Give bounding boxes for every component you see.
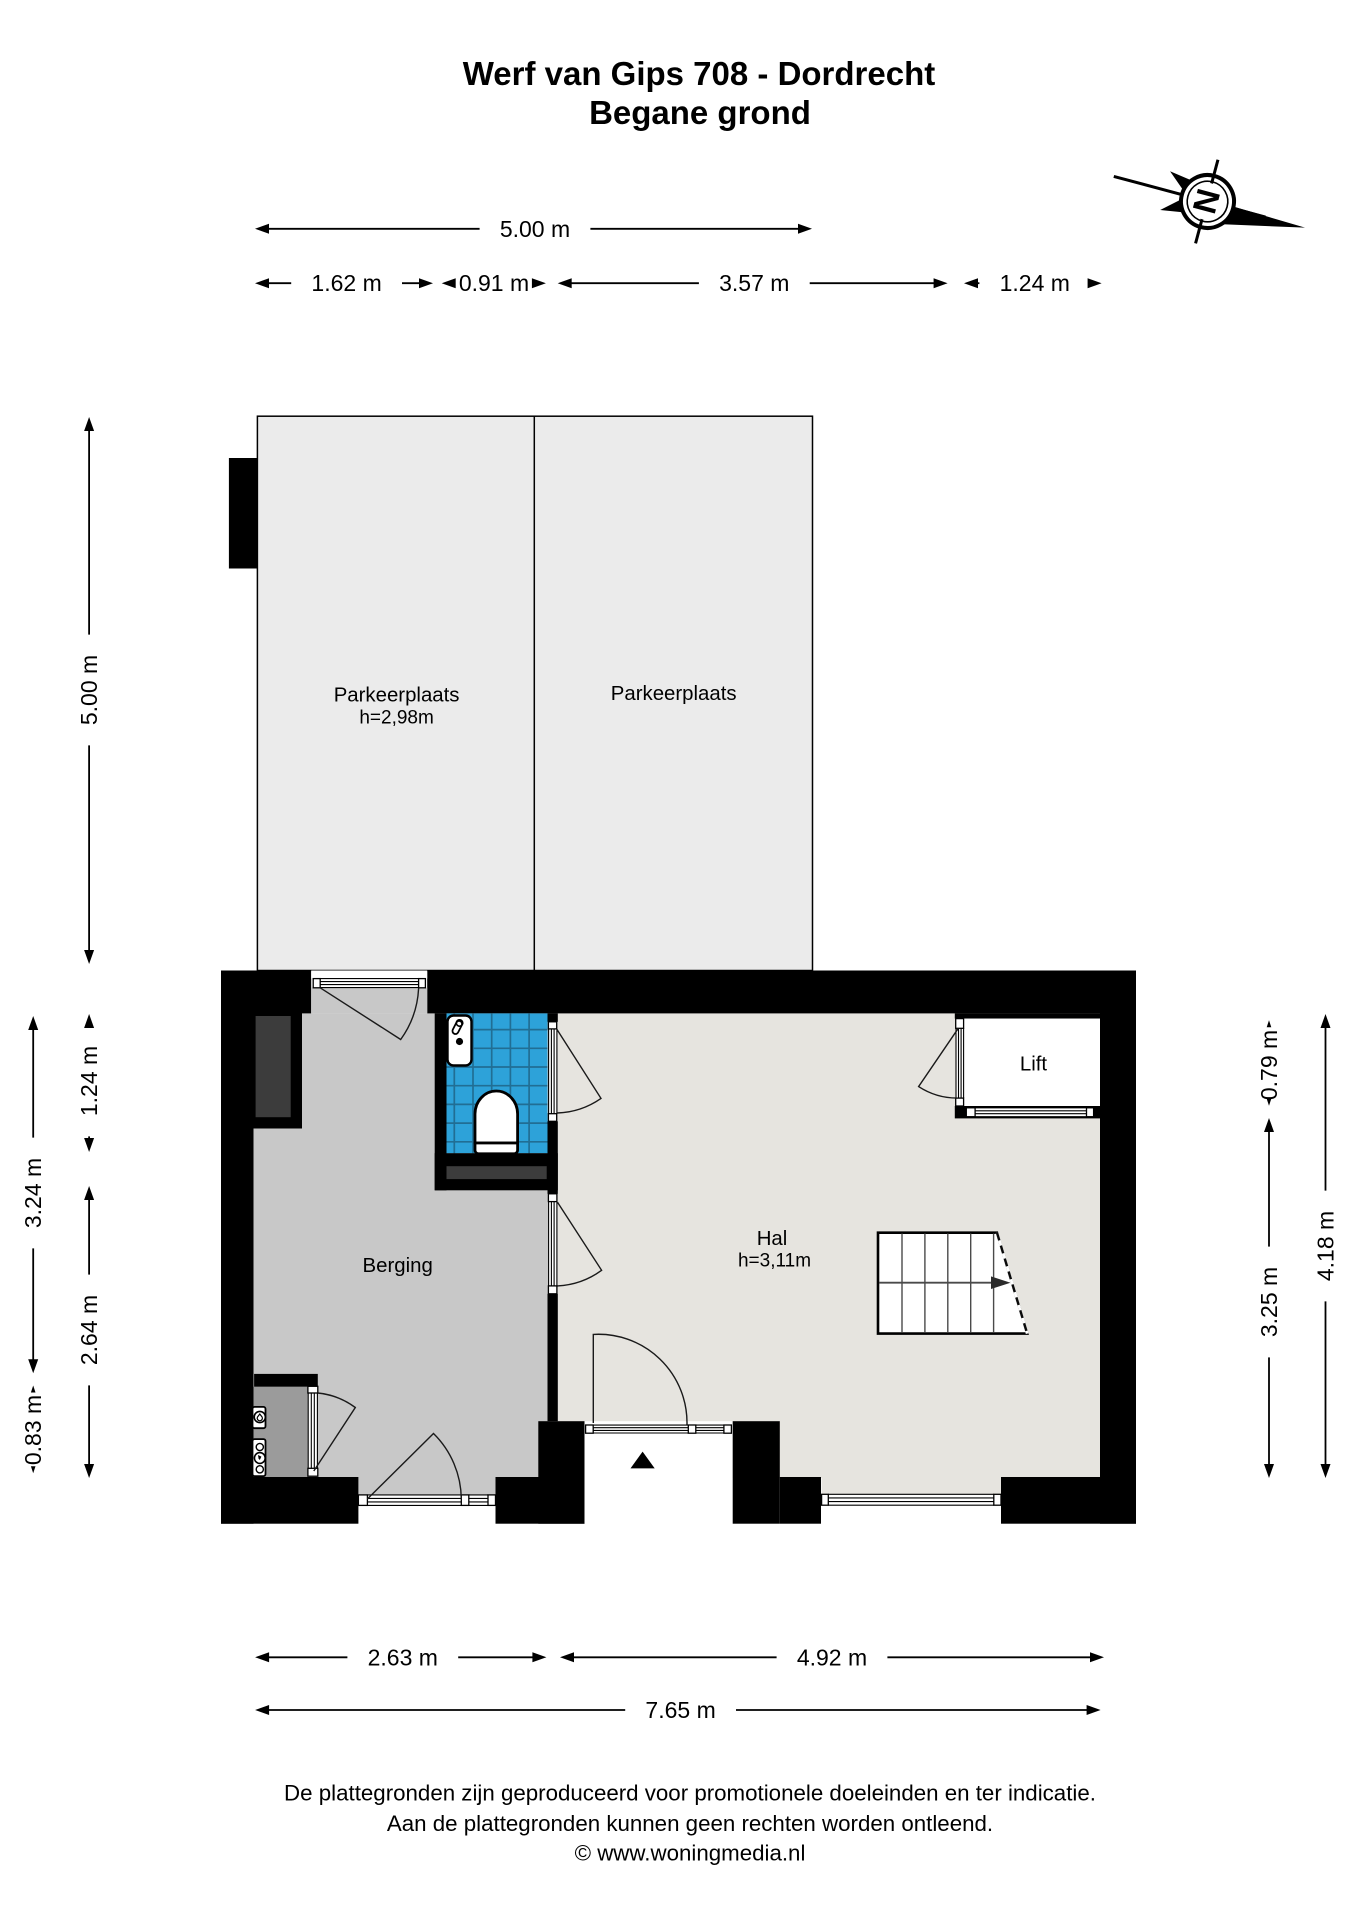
svg-text:© www.woningmedia.nl: © www.woningmedia.nl [575, 1840, 806, 1865]
svg-text:Parkeerplaats: Parkeerplaats [611, 683, 737, 705]
svg-text:3.24 m: 3.24 m [20, 1158, 46, 1228]
svg-text:1.24 m: 1.24 m [76, 1046, 102, 1116]
svg-text:0.91 m: 0.91 m [459, 270, 529, 296]
svg-text:h=2,98m: h=2,98m [359, 708, 433, 729]
svg-text:Lift: Lift [1020, 1054, 1048, 1076]
svg-text:2.64 m: 2.64 m [76, 1295, 102, 1365]
svg-text:2.63 m: 2.63 m [368, 1644, 438, 1670]
svg-text:4.18 m: 4.18 m [1313, 1211, 1339, 1281]
svg-text:Berging: Berging [363, 1255, 433, 1277]
svg-text:1.24 m: 1.24 m [1000, 270, 1070, 296]
svg-text:1.62 m: 1.62 m [311, 270, 381, 296]
svg-text:5.00 m: 5.00 m [500, 216, 570, 242]
svg-text:Begane grond: Begane grond [589, 94, 811, 131]
svg-text:0.83 m: 0.83 m [20, 1395, 46, 1465]
svg-text:0.79 m: 0.79 m [1256, 1030, 1282, 1100]
svg-text:7.65 m: 7.65 m [645, 1697, 715, 1723]
svg-text:3.25 m: 3.25 m [1256, 1267, 1282, 1337]
svg-text:Werf van Gips 708 - Dordrecht: Werf van Gips 708 - Dordrecht [463, 55, 936, 92]
svg-text:3.57 m: 3.57 m [719, 270, 789, 296]
svg-text:De plattegronden zijn geproduc: De plattegronden zijn geproduceerd voor … [284, 1781, 1096, 1806]
svg-text:5.00 m: 5.00 m [76, 655, 102, 725]
svg-text:Aan de plattegronden kunnen ge: Aan de plattegronden kunnen geen rechten… [387, 1811, 993, 1836]
svg-text:4.92 m: 4.92 m [797, 1644, 867, 1670]
svg-text:Parkeerplaats: Parkeerplaats [334, 685, 460, 707]
svg-text:h=3,11m: h=3,11m [738, 1251, 811, 1272]
svg-text:Hal: Hal [757, 1228, 788, 1250]
